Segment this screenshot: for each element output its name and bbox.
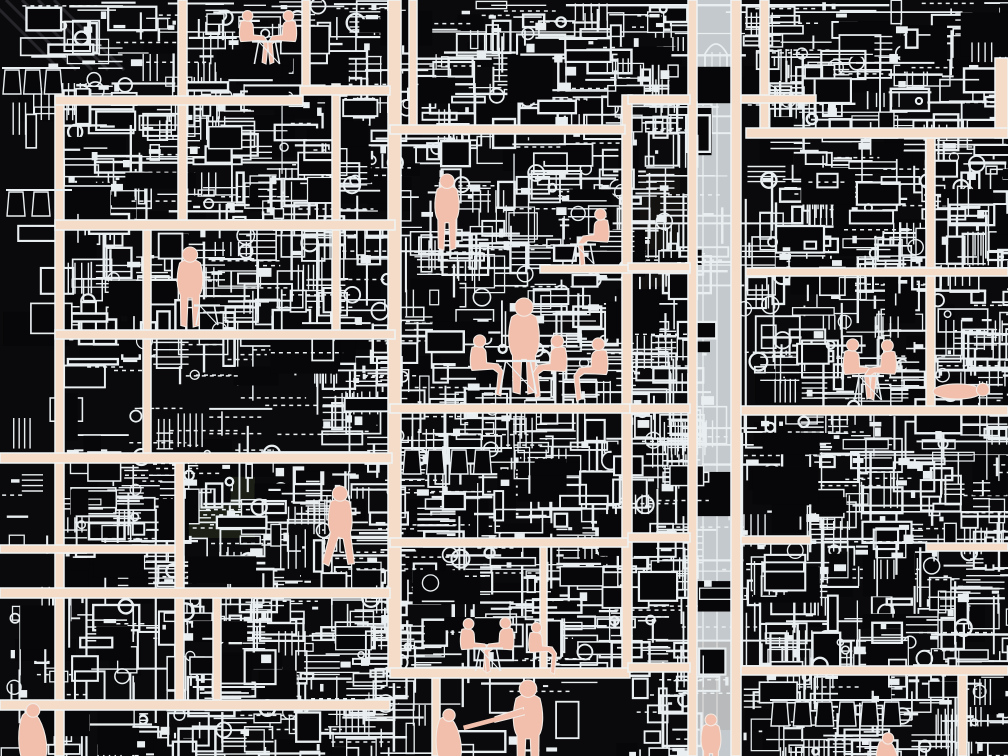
artwork-canvas <box>0 0 1008 756</box>
artwork-photo <box>0 0 1008 756</box>
